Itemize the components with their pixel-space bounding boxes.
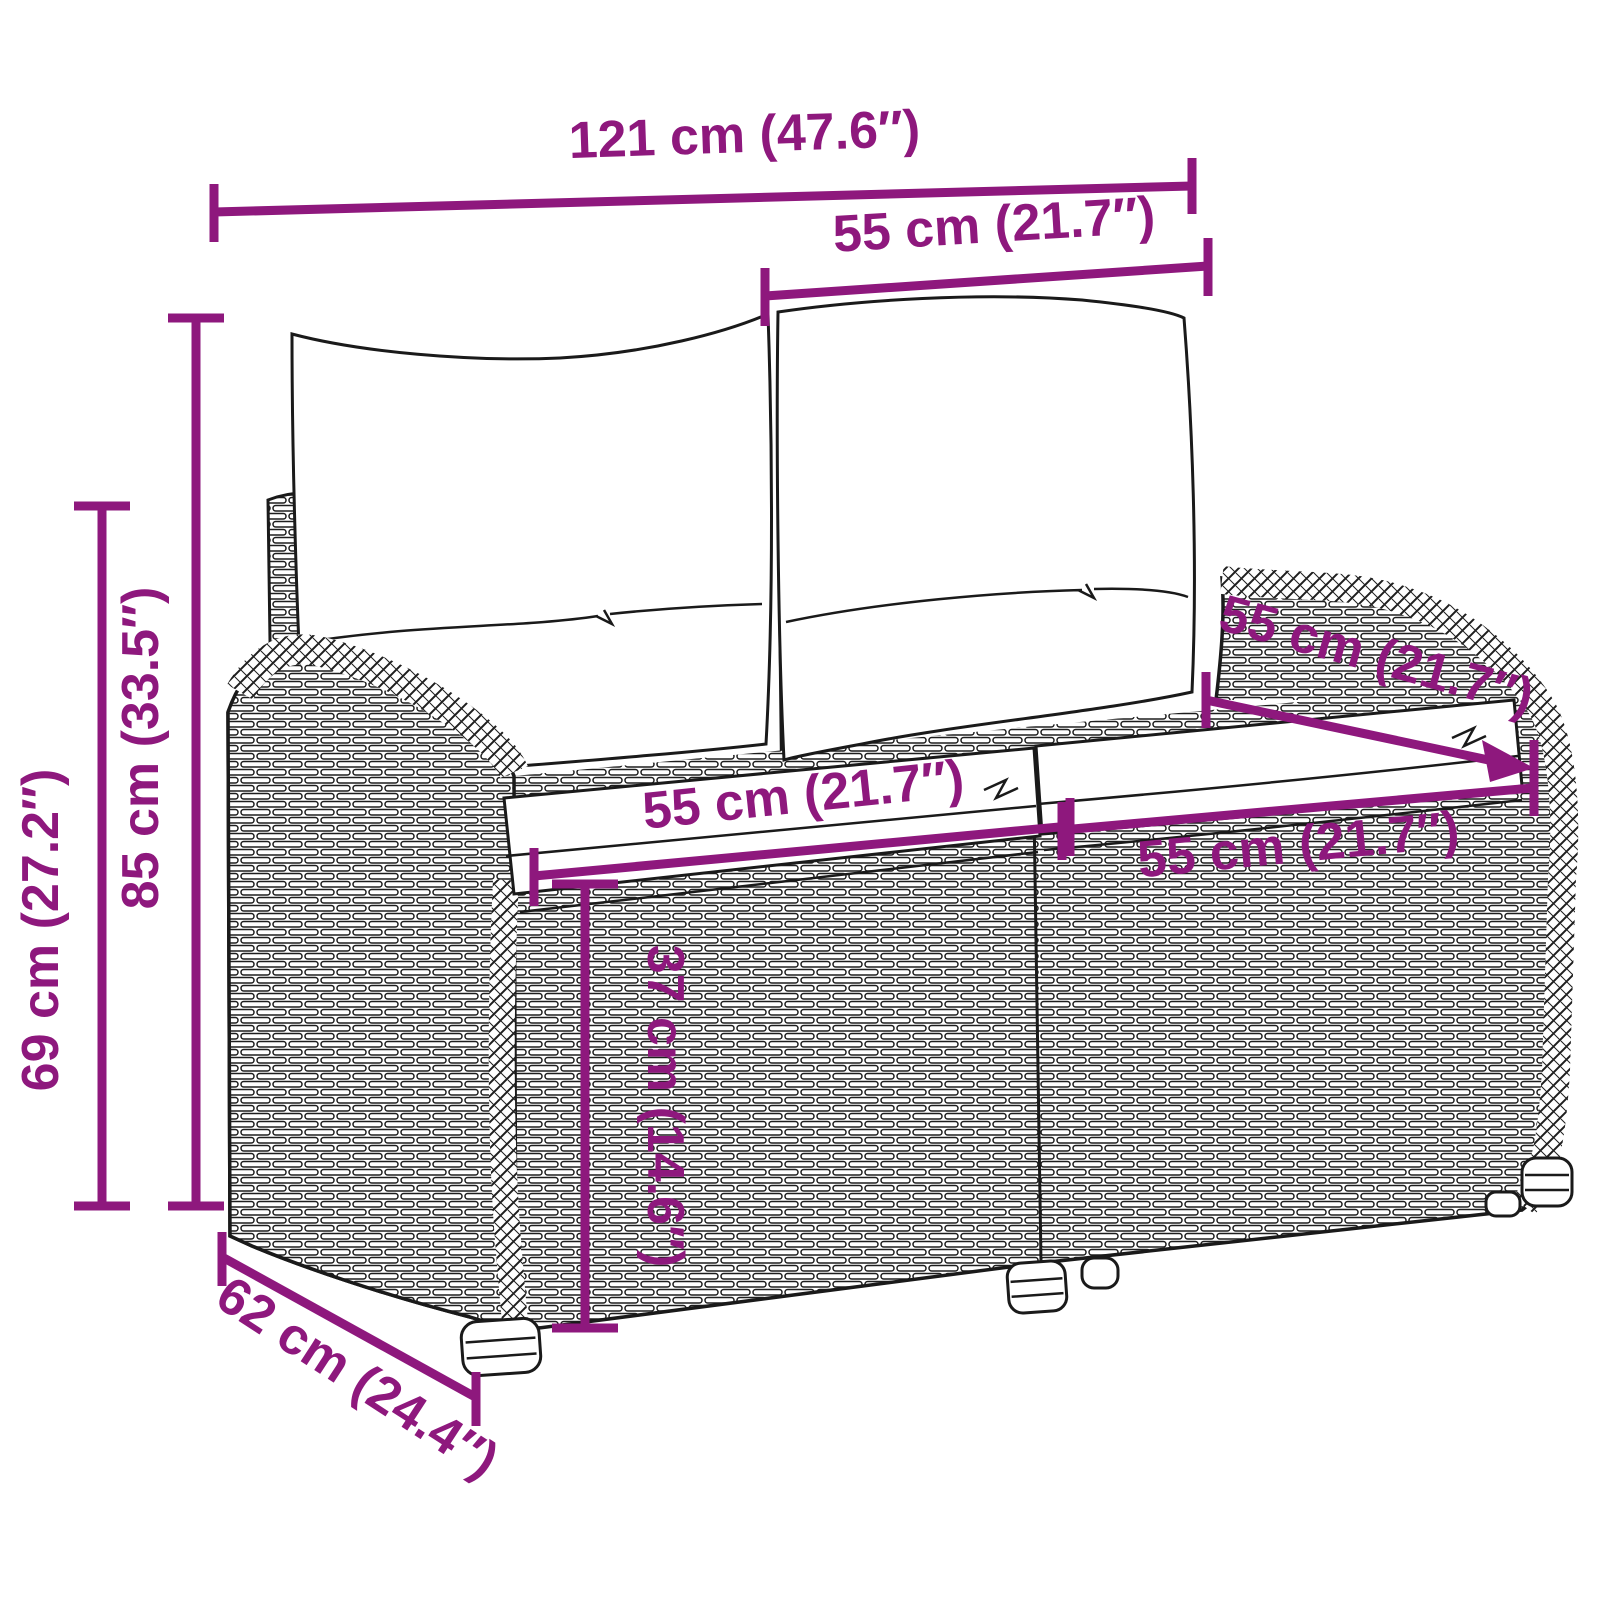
- foot-right: [1522, 1158, 1572, 1206]
- braid-left-corner: [502, 880, 516, 1330]
- foot-left: [460, 1317, 542, 1376]
- dim-arm-height-label: 69 cm (27.2″): [12, 769, 70, 1092]
- armrest-left: [228, 644, 516, 1331]
- foot-right-small: [1486, 1192, 1520, 1216]
- foot-center-small: [1082, 1258, 1118, 1288]
- bench-dimension-drawing: 121 cm (47.6″) 55 cm (21.7″) 85 cm (33.5…: [0, 0, 1600, 1600]
- back-cushion-right: [777, 297, 1194, 760]
- dim-total-height-label: 85 cm (33.5″): [112, 587, 170, 910]
- dimension-diagram: 121 cm (47.6″) 55 cm (21.7″) 85 cm (33.5…: [0, 0, 1600, 1600]
- dim-total-width-label: 121 cm (47.6″): [568, 100, 921, 170]
- dim-seat-height-label: 37 cm (14.6″): [636, 945, 694, 1268]
- foot-center: [1006, 1260, 1067, 1314]
